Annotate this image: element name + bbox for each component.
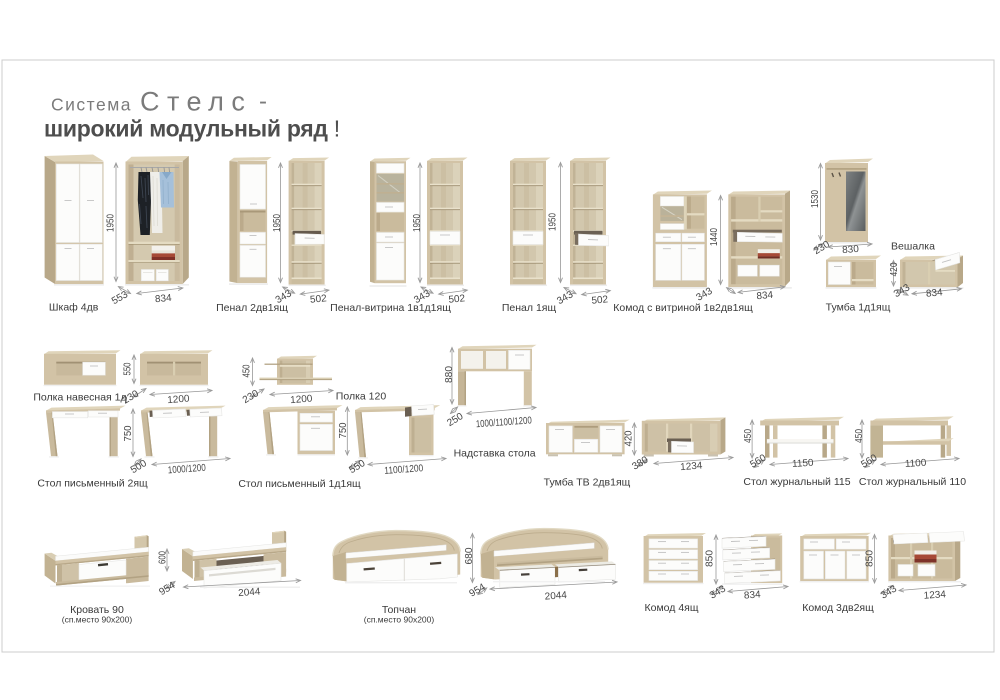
svg-text:Комод 4ящ: Комод 4ящ <box>645 602 699 614</box>
svg-text:Стол письменный 2ящ: Стол письменный 2ящ <box>37 478 148 490</box>
svg-text:450: 450 <box>743 429 754 443</box>
svg-text:2044: 2044 <box>544 590 567 603</box>
svg-text:(сп.место 90х200): (сп.место 90х200) <box>62 615 133 625</box>
svg-text:(сп.место 90х200): (сп.место 90х200) <box>364 615 435 625</box>
svg-text:Тумба 1д1ящ: Тумба 1д1ящ <box>826 302 891 314</box>
svg-text:502: 502 <box>310 293 328 305</box>
svg-text:830: 830 <box>842 244 860 256</box>
svg-text:1950: 1950 <box>106 214 117 232</box>
svg-text:1530: 1530 <box>810 190 821 208</box>
svg-text:Комод 3дв2ящ: Комод 3дв2ящ <box>802 602 874 614</box>
svg-text:502: 502 <box>591 294 609 306</box>
svg-text:1234: 1234 <box>923 589 946 602</box>
svg-text:Тумба ТВ 2дв1ящ: Тумба ТВ 2дв1ящ <box>544 477 631 489</box>
svg-text:420: 420 <box>624 430 635 446</box>
svg-text:680: 680 <box>464 547 475 564</box>
svg-text:Надставка стола: Надставка стола <box>454 447 536 459</box>
svg-text:Вешалка: Вешалка <box>891 241 935 253</box>
svg-text:-: - <box>259 88 267 115</box>
svg-text:1100: 1100 <box>905 458 928 471</box>
svg-text:750: 750 <box>123 425 134 441</box>
svg-text:1150: 1150 <box>792 458 815 471</box>
svg-text:850: 850 <box>865 550 876 567</box>
svg-text:1200: 1200 <box>167 394 190 407</box>
svg-text:1234: 1234 <box>680 461 703 474</box>
svg-text:Полка 120: Полка 120 <box>336 390 387 402</box>
svg-text:Полка навесная 1д: Полка навесная 1д <box>33 392 126 404</box>
svg-text:834: 834 <box>744 589 762 601</box>
svg-text:Пенал 2дв1ящ: Пенал 2дв1ящ <box>216 302 288 314</box>
svg-text:450: 450 <box>242 364 253 377</box>
svg-text:1950: 1950 <box>412 214 423 232</box>
svg-text:1950: 1950 <box>272 214 283 232</box>
svg-text:Комод с витриной 1в2дв1ящ: Комод с витриной 1в2дв1ящ <box>613 302 753 314</box>
svg-text:834: 834 <box>154 293 172 305</box>
svg-text:1950: 1950 <box>548 213 559 231</box>
svg-text:широкий модульный ряд !: широкий модульный ряд ! <box>44 116 340 142</box>
svg-text:Стелс: Стелс <box>140 87 252 117</box>
svg-text:Стол письменный 1д1ящ: Стол письменный 1д1ящ <box>238 478 361 490</box>
svg-text:750: 750 <box>338 422 349 438</box>
svg-text:880: 880 <box>444 366 455 383</box>
svg-text:1440: 1440 <box>709 228 720 246</box>
svg-text:Шкаф 4дв: Шкаф 4дв <box>49 302 99 314</box>
svg-text:Стол журнальный 115: Стол журнальный 115 <box>743 476 850 488</box>
svg-text:Стол журнальный 110: Стол журнальный 110 <box>859 476 966 488</box>
svg-text:834: 834 <box>756 290 774 302</box>
svg-text:Пенал-витрина 1в1д1ящ: Пенал-витрина 1в1д1ящ <box>330 302 451 314</box>
svg-text:Система: Система <box>51 95 132 115</box>
svg-text:420: 420 <box>889 262 900 276</box>
svg-text:1200: 1200 <box>290 394 313 407</box>
svg-text:Пенал 1ящ: Пенал 1ящ <box>502 302 557 314</box>
svg-text:550: 550 <box>123 362 134 375</box>
svg-text:600: 600 <box>158 551 169 564</box>
svg-text:450: 450 <box>854 429 865 443</box>
svg-text:834: 834 <box>925 287 943 299</box>
svg-text:2044: 2044 <box>238 587 261 600</box>
svg-text:850: 850 <box>705 550 716 567</box>
